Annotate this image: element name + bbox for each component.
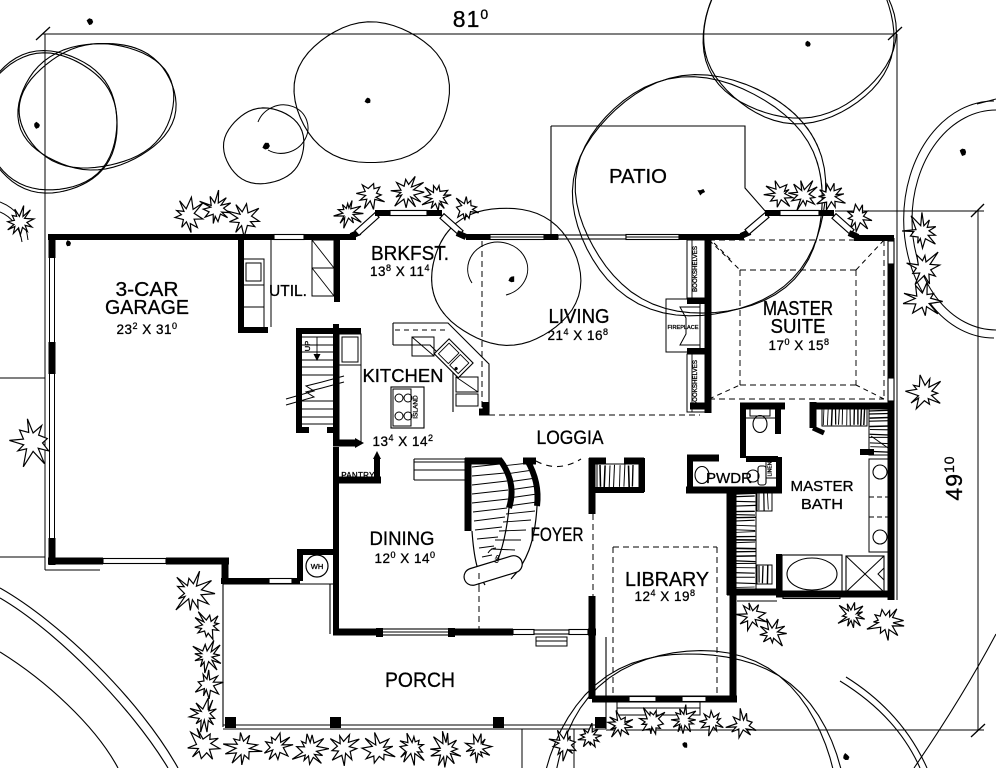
svg-text:214 X 168: 214 X 168 — [547, 327, 608, 343]
svg-text:120 X 140: 120 X 140 — [374, 550, 435, 566]
svg-text:SUITE: SUITE — [771, 316, 826, 338]
svg-text:PATIO: PATIO — [609, 166, 667, 188]
svg-text:BRKFST.: BRKFST. — [371, 243, 449, 265]
svg-text:134 X 142: 134 X 142 — [372, 433, 433, 449]
svg-text:PWDR: PWDR — [706, 470, 752, 487]
svg-text:PANTRY: PANTRY — [341, 471, 375, 480]
svg-text:UP: UP — [303, 341, 312, 351]
svg-text:FIREPLACE: FIREPLACE — [668, 325, 699, 331]
svg-text:138 X 114: 138 X 114 — [370, 263, 430, 279]
svg-text:KITCHEN: KITCHEN — [363, 366, 444, 386]
svg-text:FOYER: FOYER — [531, 525, 584, 546]
svg-text:232 X 310: 232 X 310 — [116, 321, 177, 337]
svg-text:UTIL.: UTIL. — [269, 283, 307, 300]
svg-text:124 X 198: 124 X 198 — [634, 588, 695, 604]
svg-text:MASTER: MASTER — [791, 478, 854, 495]
svg-text:BOOKSHELVES: BOOKSHELVES — [692, 360, 699, 406]
svg-text:BOOKSHELVES: BOOKSHELVES — [692, 246, 699, 292]
svg-text:ISLAND: ISLAND — [413, 395, 420, 419]
svg-text:DINING: DINING — [370, 529, 435, 550]
svg-text:PORCH: PORCH — [385, 669, 455, 692]
svg-text:LOGGIA: LOGGIA — [537, 428, 604, 449]
svg-text:170 X 158: 170 X 158 — [768, 337, 829, 353]
svg-text:LINEN: LINEN — [768, 461, 774, 476]
svg-text:BATH: BATH — [801, 496, 843, 513]
svg-text:GARAGE: GARAGE — [105, 297, 189, 319]
svg-text:LIBRARY: LIBRARY — [625, 569, 709, 591]
svg-text:WH: WH — [311, 562, 324, 571]
